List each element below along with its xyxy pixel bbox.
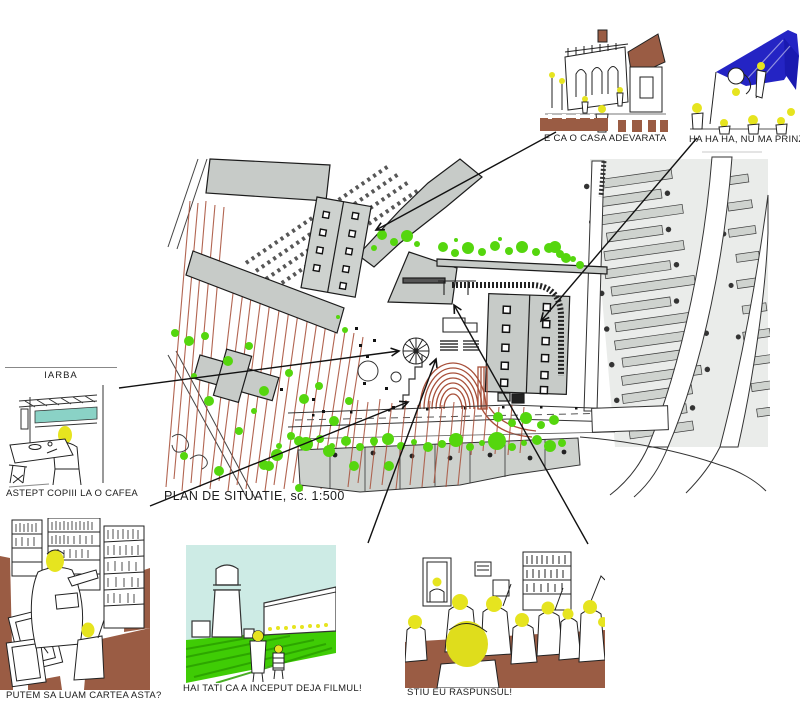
circle-mark-small (391, 372, 401, 382)
vignette-filmul: HAI TATI CA A INCEPUT DEJA FILMUL! (186, 545, 336, 683)
cafe-sketch (5, 383, 120, 491)
spacer (5, 362, 7, 364)
vignette-caption: E CA O CASA ADEVARATA (544, 133, 666, 144)
cinema-sketch (186, 545, 336, 683)
site-plan-drawing (160, 155, 770, 500)
vignette-caption: ASTEPT COPIII LA O CAFEA (6, 488, 138, 499)
vignette-caption: PUTEM SA LUAM CARTEA ASTA? (6, 690, 162, 701)
circle-mark (358, 361, 378, 381)
vignette-cartea: PUTEM SA LUAM CARTEA ASTA? (0, 518, 150, 690)
vignette-raspunsul: STIU EU RASPUNSUL! (405, 550, 605, 688)
presentation-board: E CA O CASA ADEVARATA (0, 0, 800, 715)
classroom-sketch (405, 550, 605, 688)
vignette-caption: HA HA HA, NU MA PRINZI!! (689, 134, 800, 145)
playground-sketch (688, 28, 800, 135)
vignette-nu-ma-prinzi: HA HA HA, NU MA PRINZI!! (688, 28, 800, 135)
house-sketch (540, 22, 670, 135)
vignette-iarba: IARBA (5, 362, 120, 491)
plan-right-parcels (584, 157, 770, 447)
vignette-casa-adevarata: E CA O CASA ADEVARATA (540, 22, 670, 135)
vignette-caption: STIU EU RASPUNSUL! (407, 687, 512, 698)
iarba-label: IARBA (5, 367, 117, 381)
plan-caption: PLAN DE SITUATIE, sc. 1:500 (164, 489, 345, 503)
plan-buildings (186, 159, 607, 411)
library-sketch (0, 518, 150, 690)
round-pavilion (403, 338, 429, 364)
plan-boundary-lines (168, 159, 256, 500)
vignette-caption: HAI TATI CA A INCEPUT DEJA FILMUL! (183, 683, 362, 694)
